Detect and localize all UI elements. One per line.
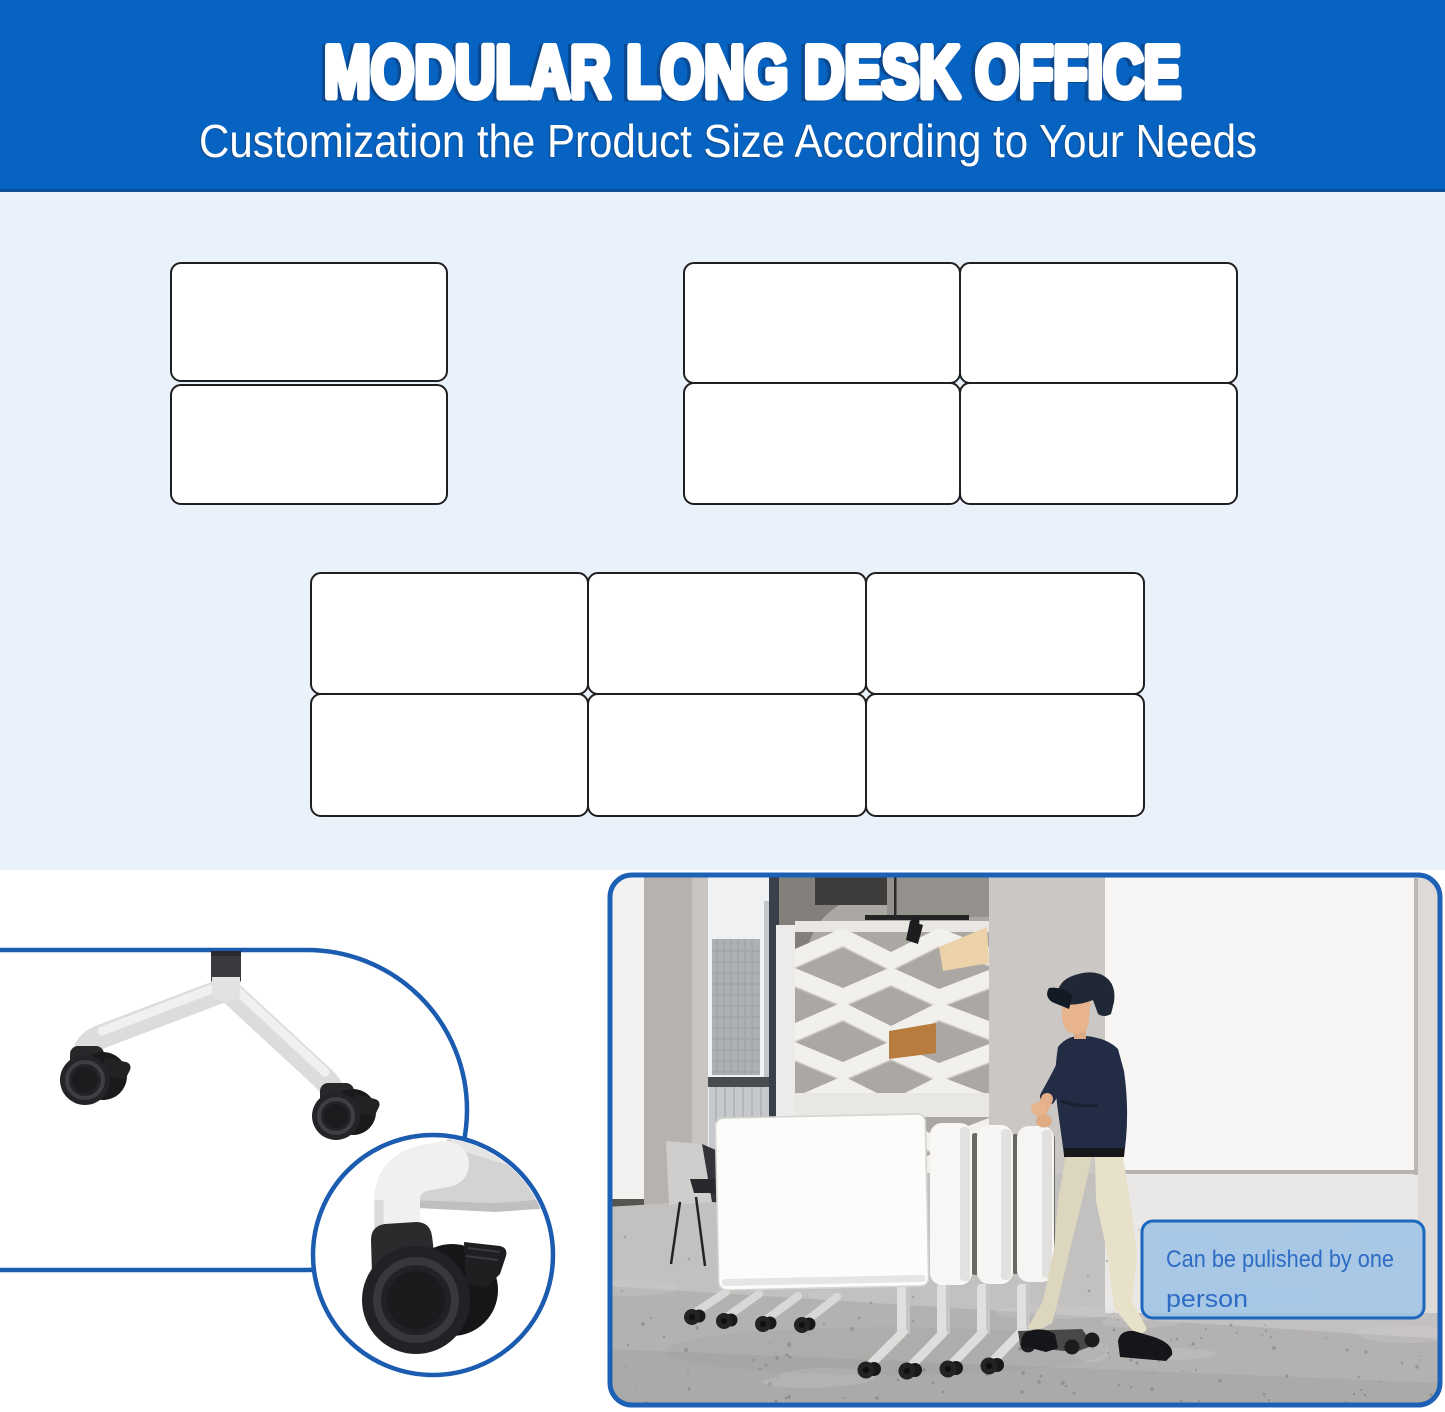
svg-text:MODULAR LONG DESK OFFICE: MODULAR LONG DESK OFFICE [324,32,1181,113]
svg-text:Customization the Product Size: Customization the Product Size According… [199,115,1257,167]
svg-text:Can be pulished by one: Can be pulished by one [1166,1246,1394,1273]
svg-text:person: person [1166,1286,1248,1313]
